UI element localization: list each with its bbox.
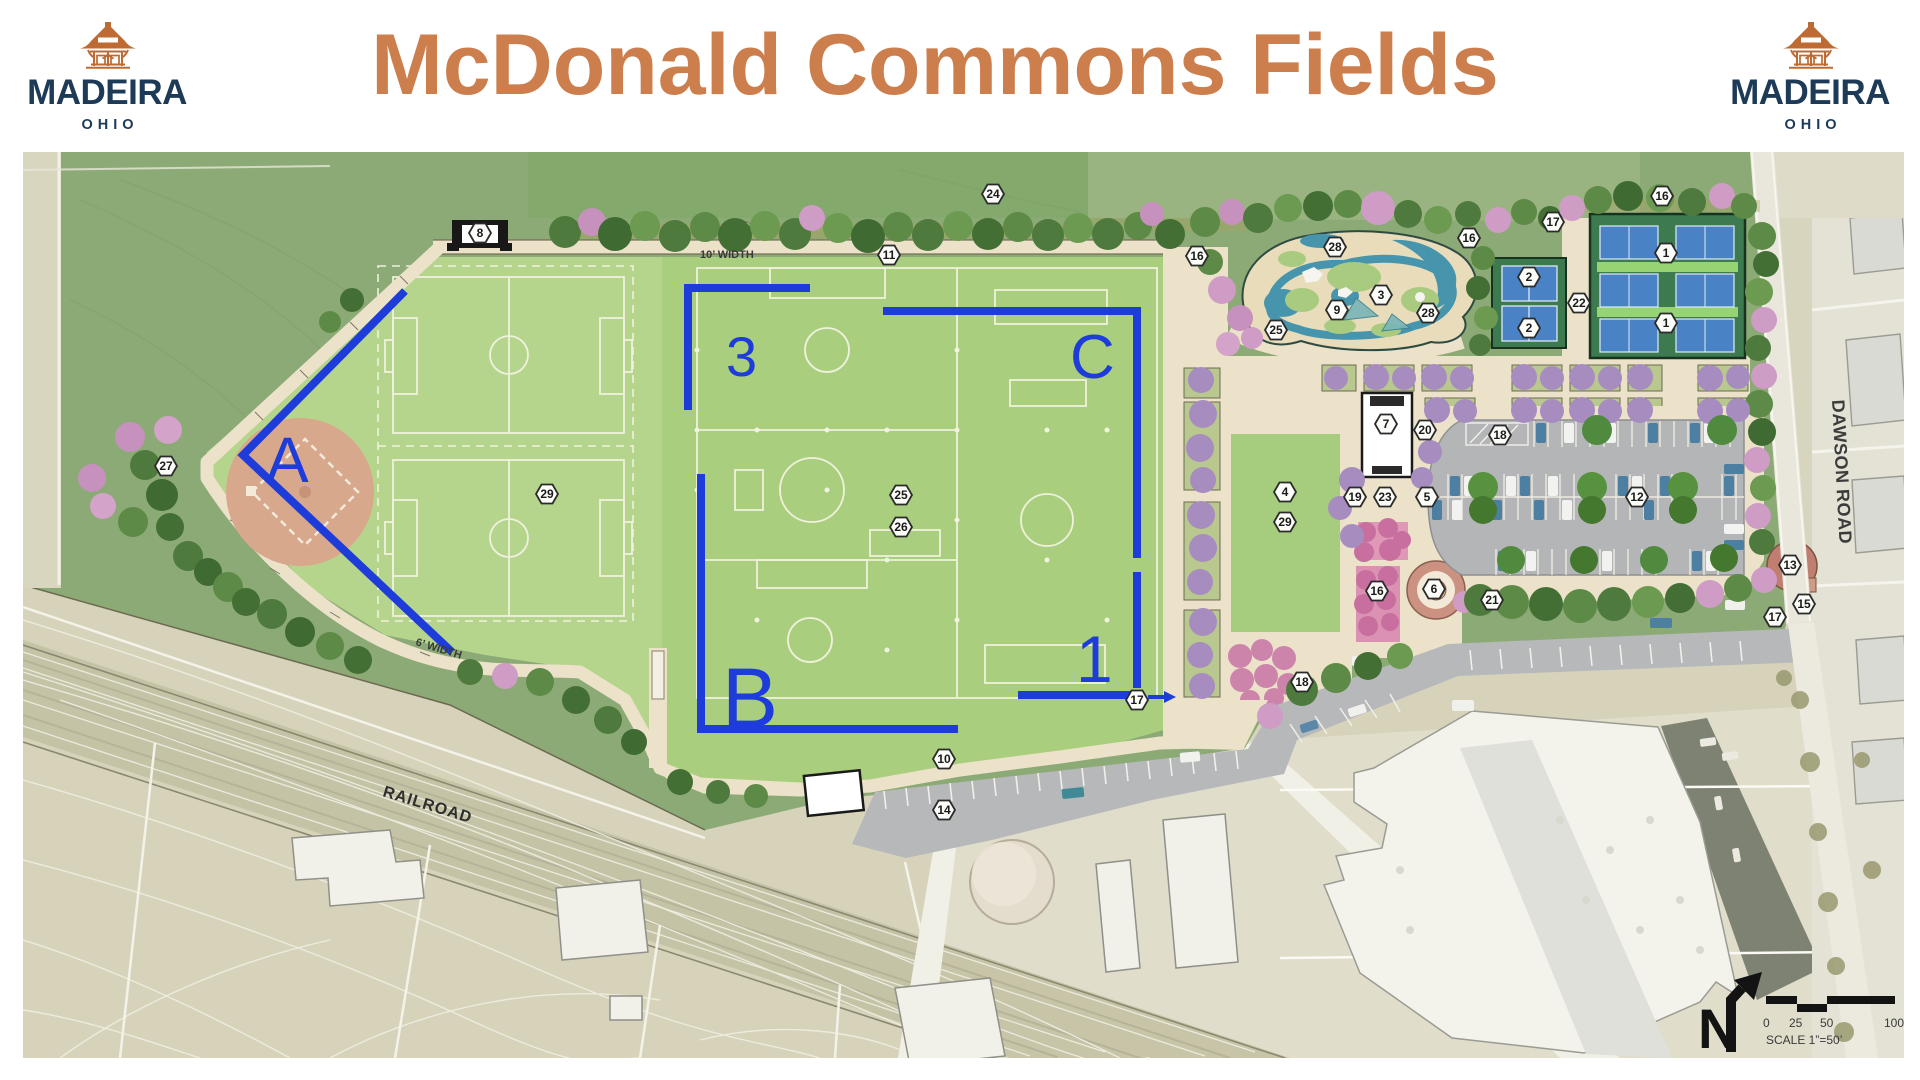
svg-text:50: 50 — [1820, 1016, 1834, 1030]
svg-text:MADEIRA: MADEIRA — [27, 73, 187, 112]
svg-text:25: 25 — [1789, 1016, 1803, 1030]
svg-text:8: 8 — [477, 226, 484, 240]
svg-text:25: 25 — [1269, 323, 1283, 337]
svg-text:18: 18 — [1493, 428, 1507, 442]
svg-text:10’ WIDTH: 10’ WIDTH — [700, 249, 754, 261]
svg-text:22: 22 — [1572, 296, 1586, 310]
svg-text:16: 16 — [1462, 231, 1476, 245]
svg-text:1: 1 — [1076, 622, 1113, 696]
svg-text:A: A — [266, 424, 309, 496]
svg-text:MADEIRA: MADEIRA — [1730, 73, 1890, 112]
svg-text:5: 5 — [1424, 490, 1431, 504]
svg-text:19: 19 — [1348, 490, 1362, 504]
svg-text:0: 0 — [1763, 1016, 1770, 1030]
svg-text:3: 3 — [726, 325, 757, 388]
svg-text:28: 28 — [1421, 306, 1435, 320]
svg-text:16: 16 — [1190, 249, 1204, 263]
svg-text:6: 6 — [1431, 582, 1438, 596]
svg-text:16: 16 — [1370, 584, 1384, 598]
svg-text:1: 1 — [1663, 316, 1670, 330]
svg-text:29: 29 — [1278, 515, 1292, 529]
svg-text:12: 12 — [1630, 490, 1644, 504]
svg-text:18: 18 — [1295, 675, 1309, 689]
svg-text:17: 17 — [1130, 693, 1144, 707]
svg-text:17: 17 — [1768, 610, 1782, 624]
svg-text:McDonald Commons Fields: McDonald Commons Fields — [371, 17, 1499, 113]
svg-text:2: 2 — [1526, 270, 1533, 284]
svg-text:24: 24 — [986, 187, 1000, 201]
svg-text:9: 9 — [1334, 303, 1341, 317]
svg-text:17: 17 — [1546, 215, 1560, 229]
svg-text:OHIO: OHIO — [81, 117, 138, 133]
svg-text:10: 10 — [937, 752, 951, 766]
svg-text:23: 23 — [1378, 490, 1392, 504]
svg-text:25: 25 — [894, 488, 908, 502]
svg-text:3: 3 — [1378, 288, 1385, 302]
svg-text:20: 20 — [1418, 423, 1432, 437]
svg-text:28: 28 — [1328, 240, 1342, 254]
svg-text:16: 16 — [1655, 189, 1669, 203]
svg-text:OHIO: OHIO — [1784, 117, 1841, 133]
svg-text:21: 21 — [1485, 593, 1499, 607]
svg-text:2: 2 — [1526, 321, 1533, 335]
svg-text:13: 13 — [1783, 558, 1797, 572]
svg-text:15: 15 — [1797, 597, 1811, 611]
svg-text:100: 100 — [1884, 1016, 1904, 1030]
svg-text:C: C — [1070, 323, 1115, 392]
svg-text:29: 29 — [540, 487, 554, 501]
svg-text:11: 11 — [883, 248, 896, 262]
svg-text:B: B — [722, 651, 778, 745]
svg-text:SCALE 1”=50’: SCALE 1”=50’ — [1766, 1033, 1842, 1047]
svg-text:4: 4 — [1282, 485, 1289, 499]
svg-text:26: 26 — [894, 520, 908, 534]
svg-text:1: 1 — [1663, 246, 1670, 260]
svg-text:7: 7 — [1383, 417, 1390, 431]
svg-text:14: 14 — [937, 803, 951, 817]
svg-text:27: 27 — [159, 459, 173, 473]
